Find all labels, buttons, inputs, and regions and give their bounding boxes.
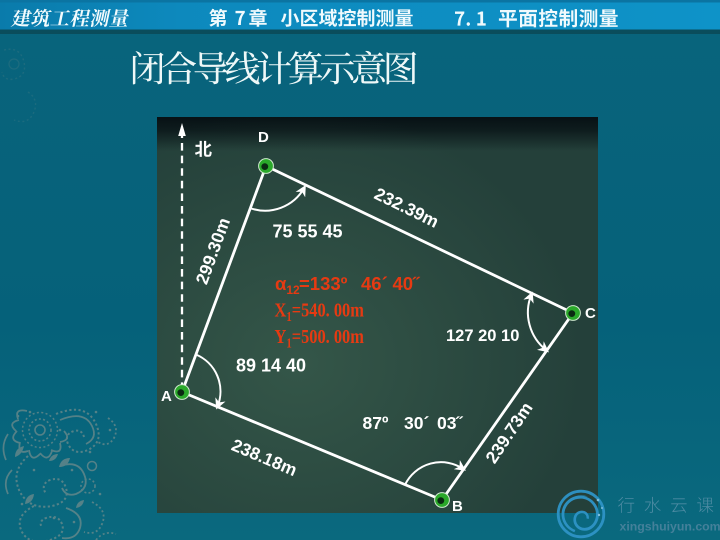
svg-text:87º30´03˝: 87º30´03˝	[363, 413, 464, 433]
svg-text:D: D	[258, 129, 269, 146]
svg-text:A: A	[161, 388, 172, 405]
svg-text:xingshuiyun.com: xingshuiyun.com	[620, 520, 720, 534]
svg-text:B: B	[452, 498, 463, 515]
svg-text:127 20 10: 127 20 10	[446, 327, 519, 345]
svg-text:C: C	[585, 305, 596, 322]
svg-text:89 14 40: 89 14 40	[236, 356, 306, 376]
svg-text:75 55 45: 75 55 45	[273, 222, 343, 242]
